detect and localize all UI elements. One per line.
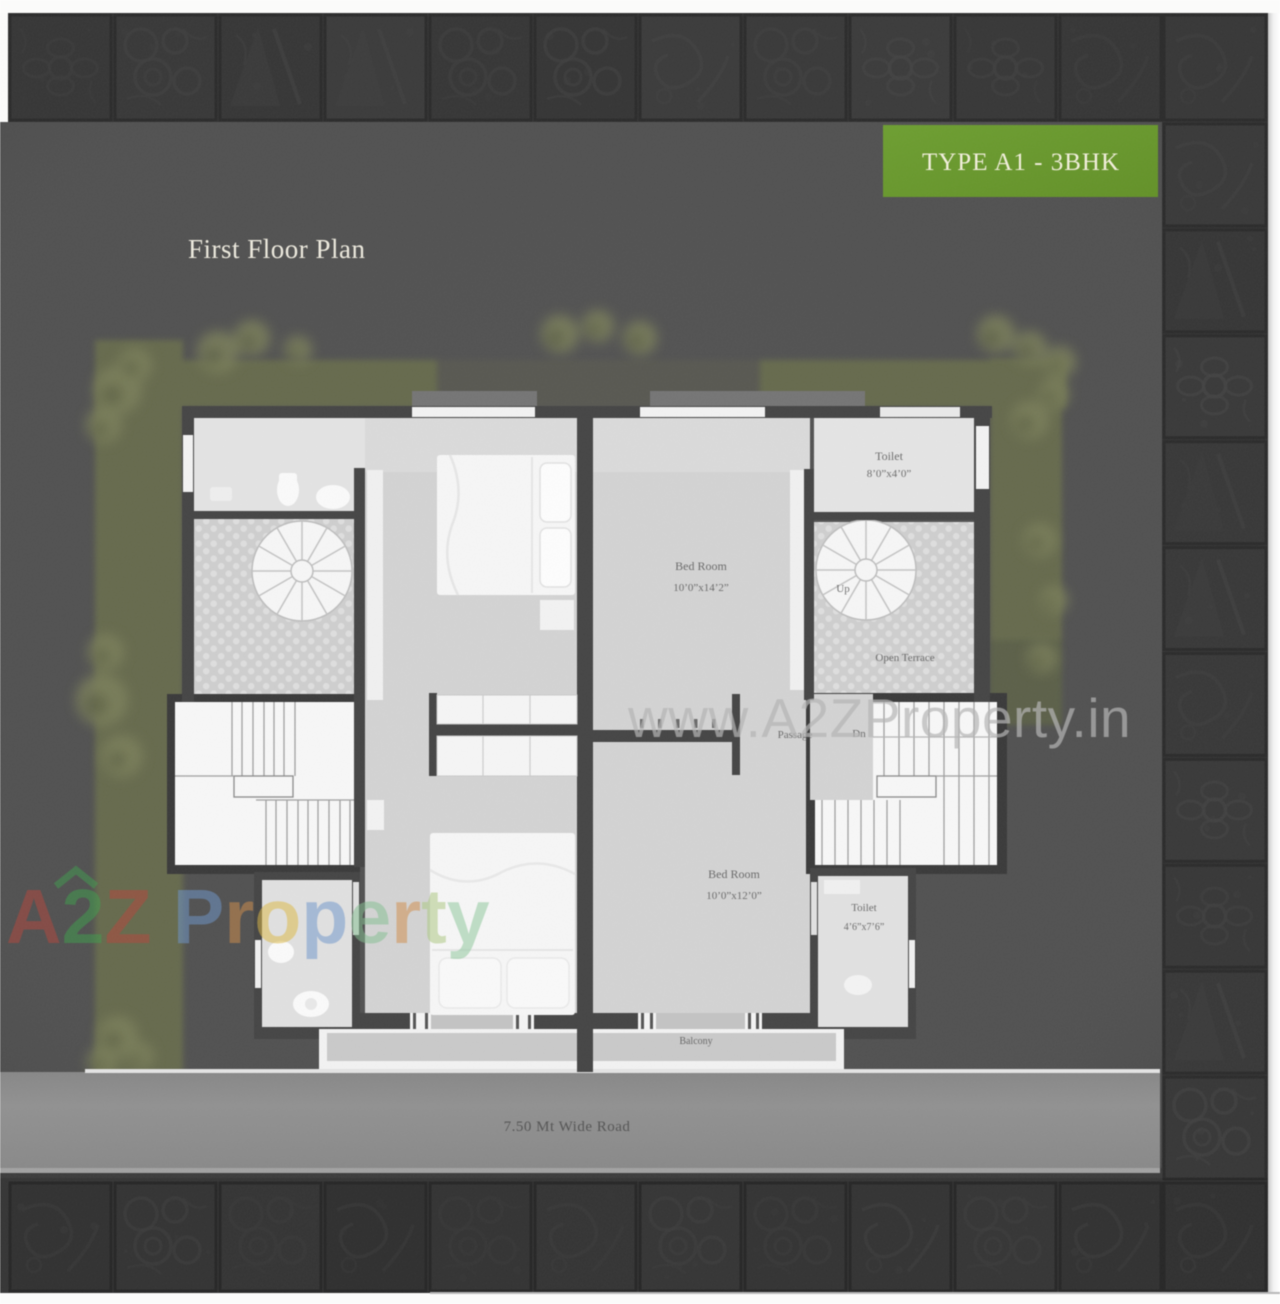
- svg-text:8’0”x4’0”: 8’0”x4’0”: [867, 468, 912, 480]
- svg-text:10’0”x14’2”: 10’0”x14’2”: [673, 582, 729, 594]
- svg-text:www.A2ZProperty.in: www.A2ZProperty.in: [627, 687, 1131, 749]
- svg-text:4’6”x7’6”: 4’6”x7’6”: [844, 922, 885, 933]
- svg-text:Bed Room: Bed Room: [708, 867, 760, 881]
- svg-text:Balcony: Balcony: [679, 1036, 712, 1047]
- svg-text:TYPE A1 - 3BHK: TYPE A1 - 3BHK: [922, 149, 1120, 176]
- svg-text:10’0”x12’0”: 10’0”x12’0”: [706, 890, 762, 902]
- svg-text:Up: Up: [836, 583, 850, 595]
- svg-text:A2Z Property: A2Z Property: [6, 874, 490, 960]
- svg-text:First Floor Plan: First Floor Plan: [188, 234, 366, 264]
- svg-text:Toilet: Toilet: [851, 902, 877, 914]
- svg-text:Open Terrace: Open Terrace: [875, 652, 934, 664]
- svg-text:Toilet: Toilet: [875, 449, 903, 463]
- svg-text:7.50 Mt Wide Road: 7.50 Mt Wide Road: [504, 1119, 631, 1135]
- svg-text:Bed Room: Bed Room: [675, 559, 727, 573]
